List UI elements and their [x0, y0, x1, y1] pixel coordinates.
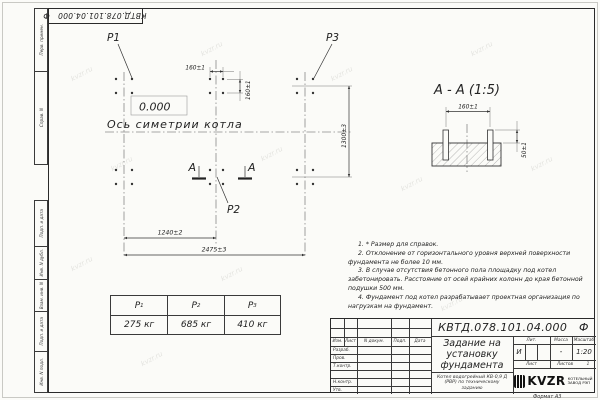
change-col-data: Дата	[409, 337, 431, 346]
row-nkontr: Н.контр.	[331, 378, 357, 386]
row-utv: Утв.	[331, 386, 357, 394]
row-prov: Пров.	[331, 354, 357, 362]
sheets-label: Листов	[550, 360, 580, 368]
plan-centerlines	[105, 60, 467, 258]
notes-block: 1. * Размер для справок. 2. Отклонение о…	[348, 241, 595, 311]
change-col-podp: Подп.	[391, 337, 409, 346]
mass-header: Масса	[550, 336, 572, 344]
logo-text: KVZR	[527, 374, 565, 388]
anchor-bolts-plan	[115, 78, 314, 185]
logo-caption: КОТЕЛЬНЫЙ ЗАВОД РЭП	[568, 377, 595, 386]
loads-value-p1: 275 кг	[111, 315, 167, 334]
section-dim-50-label: 50±1	[522, 142, 528, 158]
anchor-bolt-right	[488, 130, 494, 160]
drawing-sheet: kvzr.ru kvzr.ru kvzr.ru kvzr.ru kvzr.ru …	[0, 0, 600, 400]
coil-icon	[514, 375, 525, 388]
loads-header-p3: P3	[224, 296, 280, 315]
note-item: 3. В случае отсутствия бетонного пола пл…	[348, 267, 595, 293]
grid-line	[357, 319, 358, 394]
plan-p1-label: P1	[107, 32, 120, 44]
p-subscript: 3	[253, 303, 257, 309]
scale-value: 1:20	[572, 344, 596, 360]
grid-line	[525, 344, 526, 360]
dim-1300-label: 1300±3	[341, 124, 348, 148]
document-subtitle: Котел водогрейный КВ-0,9 Д (РВР) по техн…	[431, 372, 513, 394]
section-letter-left: А	[187, 161, 196, 174]
loads-value-p2: 685 кг	[167, 315, 223, 334]
plan-p2-label: P2	[227, 204, 240, 216]
anchor-bolt-left	[443, 130, 449, 160]
format-label: Формат А3	[533, 394, 561, 400]
p-subscript: 2	[197, 303, 201, 309]
lit-value: И	[513, 344, 525, 360]
boiler-axis-label: Ось симетрии котла	[107, 118, 243, 131]
dim-160h-label: 160±1	[185, 66, 205, 72]
note-item: 4. Фундамент под котел разрабатывает про…	[348, 294, 595, 312]
grid-line	[331, 328, 431, 329]
elevation-label: 0.000	[139, 101, 171, 114]
loads-table: P1 P2 P3 275 кг 685 кг 410 кг	[110, 295, 281, 335]
section-dim-160-label: 160±1	[458, 105, 478, 111]
note-item: 2. Отклонение от горизонтального уровня …	[348, 250, 595, 268]
document-designation: КВТД.078.101.04.000 Ф	[431, 319, 596, 336]
change-col-list: Лист	[344, 337, 357, 346]
change-col-izm: Изм.	[331, 337, 344, 346]
loads-header-p2: P2	[167, 296, 223, 315]
section-title: А - А (1:5)	[433, 83, 500, 98]
note-item: 1. * Размер для справок.	[348, 241, 595, 250]
section-cut-marks	[192, 166, 252, 179]
sheet-label: Лист	[513, 360, 550, 368]
dim-2475-label: 2475±3	[202, 247, 227, 254]
row-tkontr: Т.контр.	[331, 362, 357, 370]
dim-1240-label: 1240±2	[158, 230, 183, 237]
section-view	[432, 130, 501, 166]
dim-160v-label: 160±1	[246, 80, 252, 100]
p-subscript: 1	[140, 303, 144, 309]
lit-header: Лит.	[513, 336, 550, 344]
title-block: Изм. Лист N докум. Подп. Дата Разраб. Пр…	[330, 318, 595, 393]
section-letter-right: А	[247, 161, 256, 174]
loads-value-p3: 410 кг	[224, 315, 280, 334]
loads-header-p1: P1	[111, 296, 167, 315]
row-blank	[331, 370, 357, 378]
company-logo: KVZR КОТЕЛЬНЫЙ ЗАВОД РЭП	[513, 368, 596, 394]
document-title: Задание на установку фундамента	[431, 336, 513, 372]
row-razrab: Разраб.	[331, 346, 357, 354]
scale-header: Масштаб	[572, 336, 596, 344]
sheets-value: 1	[580, 360, 596, 368]
grid-line	[391, 319, 392, 394]
mass-value: -	[550, 344, 572, 360]
grid-line	[409, 319, 410, 394]
plan-p3-label: P3	[326, 32, 339, 44]
change-col-ndocum: N докум.	[357, 337, 391, 346]
grid-line	[537, 344, 538, 360]
